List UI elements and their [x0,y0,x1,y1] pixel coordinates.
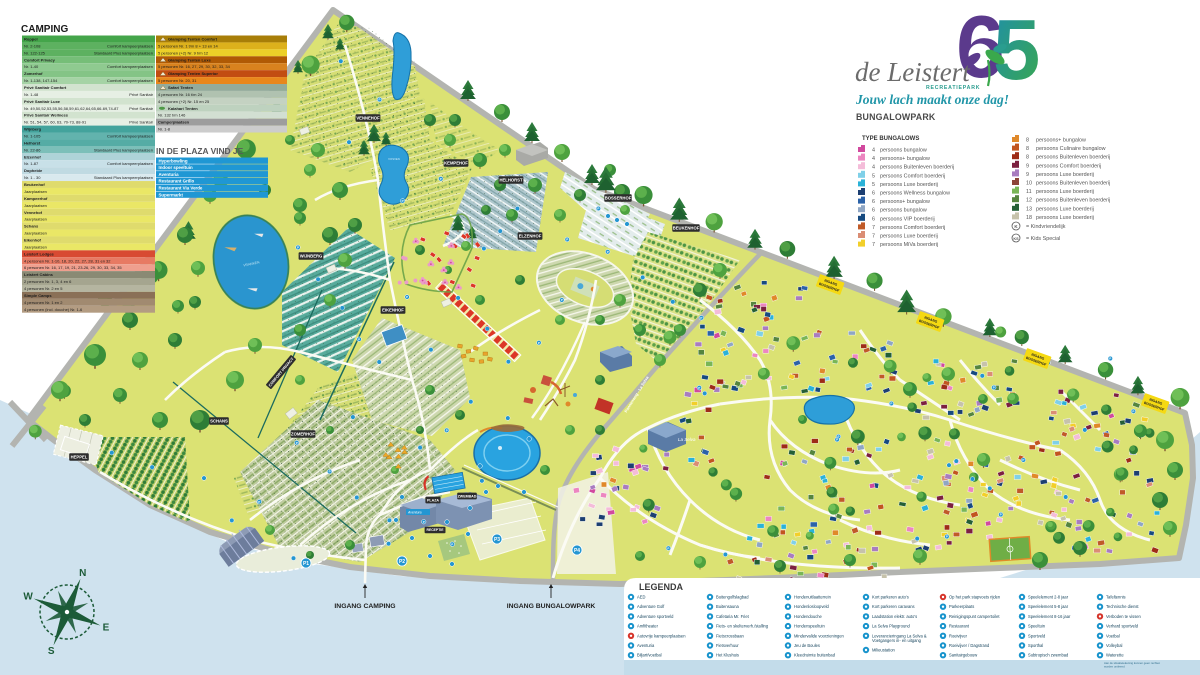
svg-text:P: P [402,199,404,203]
svg-text:Roeivijver / Dagstrand: Roeivijver / Dagstrand [949,643,990,648]
svg-text:persoons Luxe boerderij: persoons Luxe boerderij [1036,189,1094,195]
svg-text:P: P [1022,458,1024,462]
svg-text:7: 7 [872,242,875,248]
svg-text:8: 8 [1026,155,1029,161]
svg-text:P: P [566,238,568,242]
svg-text:P: P [446,428,448,432]
svg-text:Amfitheater: Amfitheater [637,624,659,629]
svg-text:Nr. 1-40: Nr. 1-40 [24,64,39,69]
svg-text:persoons Luxe boerderij: persoons Luxe boerderij [1036,206,1094,212]
svg-text:Comfort kampeerplaatsen: Comfort kampeerplaatsen [107,64,153,69]
svg-text:Standaard Plus kampeerplaatsen: Standaard Plus kampeerplaatsen [94,175,153,180]
svg-text:P: P [700,316,702,320]
svg-text:persoons bungalow: persoons bungalow [880,148,927,154]
svg-text:P2: P2 [399,559,405,565]
svg-text:Jaarplaatsen: Jaarplaatsen [24,189,47,194]
svg-text:P: P [667,546,669,550]
svg-text:Restaurant: Restaurant [949,624,970,629]
svg-text:CAMPING: CAMPING [21,24,68,35]
svg-text:Hondendouche: Hondendouche [794,614,822,619]
svg-text:N: N [79,568,86,579]
svg-text:Aventura: Aventura [407,511,422,515]
svg-text:4 personen Nr. 16 t/m 24: 4 personen Nr. 16 t/m 24 [158,92,203,97]
svg-text:Fietsverhuur: Fietsverhuur [716,643,739,648]
svg-text:Nr. 122-125: Nr. 122-125 [24,50,46,55]
svg-text:Kalahari Tenten: Kalahari Tenten [168,106,198,111]
svg-text:Hyperbowling: Hyperbowling [159,158,188,163]
svg-text:Privé Sanitair: Privé Sanitair [129,120,153,125]
svg-text:13: 13 [1026,206,1032,212]
svg-text:6: 6 [872,208,875,214]
svg-text:Kleedruimte buitenbad: Kleedruimte buitenbad [794,653,836,658]
svg-text:ZWEMBAD: ZWEMBAD [458,494,477,498]
svg-text:Nr. 1-48: Nr. 1-48 [24,92,39,97]
svg-text:SCHANS: SCHANS [210,419,228,424]
svg-text:INGANG BUNGALOWPARK: INGANG BUNGALOWPARK [507,603,596,610]
svg-text:INGANG CAMPING: INGANG CAMPING [334,603,395,610]
svg-text:Sanitairgebouw: Sanitairgebouw [949,653,977,658]
svg-text:Indoor speeltuin: Indoor speeltuin [159,165,193,170]
svg-text:Roeivijver: Roeivijver [949,633,968,638]
svg-text:KEMPEHOF: KEMPEHOF [444,161,468,166]
svg-text:Cafetaria Mr. Friet: Cafetaria Mr. Friet [716,614,750,619]
svg-text:Jaarplaatsen: Jaarplaatsen [24,203,47,208]
svg-text:P: P [358,337,360,341]
svg-text:Het Klushuis: Het Klushuis [716,653,739,658]
svg-text:VOSVEN: VOSVEN [388,157,400,161]
svg-text:Hondenspeeltuin: Hondenspeeltuin [794,624,825,629]
svg-text:La Selva Playground: La Selva Playground [872,624,911,629]
svg-text:P4: P4 [574,548,580,554]
svg-text:Camperplaatsen: Camperplaatsen [158,120,190,125]
svg-text:P: P [597,207,599,211]
svg-text:Speelelement 5-8 jaar: Speelelement 5-8 jaar [1028,604,1069,609]
svg-text:Beukenhof: Beukenhof [24,182,45,187]
svg-text:Standaard Plus kampeerplaatsen: Standaard Plus kampeerplaatsen [94,147,153,152]
svg-text:= Kindvriendelijk: = Kindvriendelijk [1026,224,1066,230]
svg-text:Hondenuitlaatterrein: Hondenuitlaatterrein [794,595,832,600]
svg-text:Reinigingspunt campertoilet: Reinigingspunt campertoilet [949,614,1000,619]
svg-text:Mindervalide voorzieningen: Mindervalide voorzieningen [794,633,845,638]
svg-text:Kort parkeren auto's: Kort parkeren auto's [872,595,909,600]
svg-text:Speeltuin: Speeltuin [1028,624,1046,629]
svg-text:P: P [406,295,408,299]
svg-text:Hondenlosloopveld: Hondenlosloopveld [794,604,830,609]
svg-text:7: 7 [872,234,875,240]
svg-text:P: P [993,386,995,390]
svg-text:VENNEHOF: VENNEHOF [356,116,380,121]
svg-text:Privé Sanitair Luxe: Privé Sanitair Luxe [24,99,61,104]
svg-text:KS: KS [1013,237,1019,241]
svg-text:6: 6 [872,191,875,197]
svg-text:S: S [48,646,55,657]
svg-text:persoons MiVa boerderij: persoons MiVa boerderij [880,242,938,248]
svg-text:9: 9 [1026,172,1029,178]
svg-text:P: P [423,520,425,524]
svg-text:Glamping Tenten Comfort: Glamping Tenten Comfort [168,37,218,42]
svg-text:11: 11 [1026,189,1032,195]
svg-text:5 personen (+2) Nr. 9 t/m 12: 5 personen (+2) Nr. 9 t/m 12 [158,50,209,55]
svg-text:Kort parkeren caravans: Kort parkeren caravans [872,604,915,609]
svg-text:persoons+ bungalow: persoons+ bungalow [880,199,930,205]
svg-text:Nr. 1-87: Nr. 1-87 [24,161,39,166]
svg-text:4 personen Nr. 1 en 2: 4 personen Nr. 1 en 2 [24,300,63,305]
svg-text:Technische dienst: Technische dienst [1106,604,1139,609]
svg-text:7: 7 [872,225,875,231]
svg-text:P: P [258,500,260,504]
svg-text:4 personen (+2) Nr. 15 en 25: 4 personen (+2) Nr. 15 en 25 [158,99,210,104]
svg-text:12: 12 [1026,198,1032,204]
svg-text:Restaurant Grillo: Restaurant Grillo [159,179,195,184]
svg-text:Tafeltennis: Tafeltennis [1106,595,1126,600]
svg-text:Nr. 1-8: Nr. 1-8 [158,127,171,132]
svg-text:Comfort kampeerplaatsen: Comfort kampeerplaatsen [107,134,153,139]
svg-text:Vennehof: Vennehof [24,210,43,215]
svg-text:Biljart/voetbal: Biljart/voetbal [637,653,662,658]
svg-text:P: P [378,98,380,102]
svg-text:E: E [103,623,110,634]
svg-text:Volleybal: Volleybal [1106,643,1122,648]
svg-text:Privé Sanitair: Privé Sanitair [129,92,153,97]
svg-text:Roppel: Roppel [24,37,38,42]
svg-text:de Leistert: de Leistert [855,57,971,87]
svg-text:EIKENHOF: EIKENHOF [382,308,404,313]
svg-text:5 personen Nr. 1 t/m 8 + 13 e: 5 personen Nr. 1 t/m 8 + 13 en 14 [158,43,218,48]
svg-text:Sportveld: Sportveld [1028,633,1046,638]
svg-text:Jouw lach maakt onze dag!: Jouw lach maakt onze dag! [855,92,1009,107]
svg-text:Aventuria: Aventuria [637,643,655,648]
svg-text:P: P [297,246,299,250]
svg-text:Comfort kampeerplaatsen: Comfort kampeerplaatsen [107,78,153,83]
svg-text:persoons Comfort boerderij: persoons Comfort boerderij [880,173,945,179]
svg-text:6 personen Nr. 16, 17, 19, 21,: 6 personen Nr. 16, 17, 19, 21, 23-26, 29… [24,265,122,270]
svg-text:Nr. 2-108: Nr. 2-108 [24,43,41,48]
svg-text:BEUKENHOF: BEUKENHOF [673,226,700,231]
svg-text:Leistert Cabins: Leistert Cabins [24,272,54,277]
svg-text:4 personen Nr. 1-10, 18, 20, 2: 4 personen Nr. 1-10, 18, 20, 22, 27, 28,… [24,258,111,263]
svg-text:IN DE PLAZA VIND JE: IN DE PLAZA VIND JE [156,146,244,156]
svg-text:persoons+ bungalow: persoons+ bungalow [880,156,930,162]
svg-text:Nr. 1 - 30: Nr. 1 - 30 [24,175,41,180]
svg-text:10: 10 [1026,181,1032,187]
svg-text:6: 6 [872,216,875,222]
svg-text:persoons Luxe boerderij: persoons Luxe boerderij [880,182,938,188]
svg-text:18: 18 [1026,215,1032,221]
svg-text:Fiets- en skelterverh./stallin: Fiets- en skelterverh./stalling [716,624,769,629]
svg-text:P3: P3 [494,537,500,543]
svg-text:persoons Luxe boerderij: persoons Luxe boerderij [880,234,938,240]
svg-text:Autovrije kampeerplaatsen: Autovrije kampeerplaatsen [637,633,686,638]
svg-text:Helhorst: Helhorst [24,140,41,145]
svg-text:Jaarplaatsen: Jaarplaatsen [24,231,47,236]
svg-text:5: 5 [872,173,875,179]
svg-text:persoons Buitenleven boerderij: persoons Buitenleven boerderij [1036,155,1110,161]
svg-text:Aventuria: Aventuria [159,172,180,177]
svg-text:persoons VIP boerderij: persoons VIP boerderij [880,216,935,222]
svg-text:Nr. 51, 54, 57, 60, 63, 70-73,: Nr. 51, 54, 57, 60, 63, 70-73, 88-91 [24,120,87,125]
svg-text:Buitensauna: Buitensauna [716,604,739,609]
svg-text:persoons Buitenleven boerderij: persoons Buitenleven boerderij [1036,181,1110,187]
svg-text:RECEPTIE: RECEPTIE [427,528,445,532]
svg-text:Jaarplaatsen: Jaarplaatsen [24,217,47,222]
svg-text:ELZENHOF: ELZENHOF [519,234,542,239]
svg-text:P: P [296,441,298,445]
svg-text:HEPPEL: HEPPEL [71,455,88,460]
svg-text:HELHORST: HELHORST [499,178,522,183]
svg-text:Op het park stapvoets rijden: Op het park stapvoets rijden [949,595,1001,600]
svg-text:persoons+ bungalow: persoons+ bungalow [1036,138,1086,144]
svg-text:Privé Sanitair Comfort: Privé Sanitair Comfort [24,85,67,90]
svg-text:Voetbal: Voetbal [1106,633,1120,638]
svg-text:Restaurant Via Verde: Restaurant Via Verde [159,186,203,191]
svg-text:Leistert Lodges: Leistert Lodges [24,251,55,256]
svg-text:WIJNBERG: WIJNBERG [300,254,323,259]
svg-text:Buitengolfslagbad: Buitengolfslagbad [716,595,749,600]
svg-text:Verhard sportveld: Verhard sportveld [1106,624,1139,629]
svg-text:persoons Wellness bungalow: persoons Wellness bungalow [880,191,950,197]
svg-text:= Kids Special: = Kids Special [1026,236,1060,242]
svg-text:RECREATIEPARK: RECREATIEPARK [926,85,980,91]
svg-text:Parkeerplaats: Parkeerplaats [949,604,974,609]
svg-text:P: P [440,177,442,181]
svg-text:persoons bungalow: persoons bungalow [880,208,927,214]
svg-text:persoons Buitenleven boerderij: persoons Buitenleven boerderij [1036,198,1110,204]
svg-text:Milieustation: Milieustation [872,648,895,653]
svg-text:Speelelement 8-16 jaar: Speelelement 8-16 jaar [1028,614,1071,619]
svg-text:Fietscrossbaan: Fietscrossbaan [716,633,744,638]
svg-text:Jeu de Boules: Jeu de Boules [794,643,820,648]
svg-text:Subtropisch zwembad: Subtropisch zwembad [1028,653,1069,658]
svg-text:Nr. 22-86: Nr. 22-86 [24,147,41,152]
svg-text:9: 9 [1026,163,1029,169]
svg-text:Comfort kampeerplaatsen: Comfort kampeerplaatsen [107,43,153,48]
svg-text:PLAZA: PLAZA [427,498,439,502]
svg-text:P: P [946,535,948,539]
svg-text:5: 5 [872,182,875,188]
svg-text:P: P [329,470,331,474]
svg-text:6: 6 [872,199,875,205]
svg-text:P: P [698,386,700,390]
svg-text:TYPE BUNGALOWS: TYPE BUNGALOWS [862,136,919,142]
svg-text:4: 4 [872,156,875,162]
svg-text:8: 8 [1026,146,1029,152]
svg-text:BOSSERHOF: BOSSERHOF [605,196,632,201]
svg-text:Nr. 1-105: Nr. 1-105 [24,134,41,139]
svg-text:persoons Culinaire bungalow: persoons Culinaire bungalow [1036,146,1106,152]
svg-text:Glamping Tenten Luxe: Glamping Tenten Luxe [168,57,212,62]
svg-text:Nr. 1-138, 147-154: Nr. 1-138, 147-154 [24,78,58,83]
svg-text:W: W [23,591,33,602]
svg-text:Safari Tenten: Safari Tenten [168,85,194,90]
svg-text:Nr. 132 t/m 146: Nr. 132 t/m 146 [158,113,186,118]
svg-text:4: 4 [872,165,875,171]
svg-text:Schans: Schans [24,224,39,229]
svg-text:P: P [561,298,563,302]
svg-text:4 personen Nr. 2 en 5: 4 personen Nr. 2 en 5 [24,286,63,291]
svg-text:5 personen Nr. 20, 31: 5 personen Nr. 20, 31 [158,78,197,83]
svg-text:persoons Buitenleven boerderij: persoons Buitenleven boerderij [880,165,954,171]
svg-text:Elzenhof: Elzenhof [24,154,41,159]
svg-text:P: P [607,250,609,254]
svg-text:Kampeerhof: Kampeerhof [24,196,48,201]
svg-text:Comfort kampeerplaatsen: Comfort kampeerplaatsen [107,161,153,166]
svg-text:5 personen Nr. 16, 27, 29, 30: 5 personen Nr. 16, 27, 29, 30, 32, 33, 3… [158,64,231,69]
svg-text:Adventure Golf: Adventure Golf [637,604,665,609]
svg-text:persoons Comfort boerderij: persoons Comfort boerderij [1036,163,1101,169]
svg-text:P: P [890,402,892,406]
svg-text:P: P [451,542,453,546]
svg-text:Waterette: Waterette [1106,653,1124,658]
svg-text:4 personen (incl. douche) Nr.: 4 personen (incl. douche) Nr. 1-6 [24,307,83,312]
svg-text:Voetgangers in- en uitgang: Voetgangers in- en uitgang [872,638,922,643]
svg-text:BUNGALOWPARK: BUNGALOWPARK [856,112,936,122]
svg-text:P: P [836,438,838,442]
svg-text:Nr. 49,50,52,53,55,56,58,59,61: Nr. 49,50,52,53,55,56,58,59,61,62,64,65,… [24,106,119,111]
svg-text:Eikenhof: Eikenhof [24,237,42,242]
svg-text:2 personen Nr. 1, 3, 4 en 6: 2 personen Nr. 1, 3, 4 en 6 [24,279,72,284]
svg-text:Speelelement 2-8 jaar: Speelelement 2-8 jaar [1028,595,1069,600]
svg-text:AED: AED [637,595,645,600]
svg-text:Glamping Tenten Superior: Glamping Tenten Superior [168,71,218,76]
svg-text:LEGENDA: LEGENDA [639,582,684,592]
svg-text:P1: P1 [303,561,309,567]
svg-text:Wijnberg: Wijnberg [24,127,42,132]
svg-text:Sporthal: Sporthal [1028,643,1043,648]
svg-text:Privé Sanitair: Privé Sanitair [129,106,153,111]
svg-text:8: 8 [1026,138,1029,144]
svg-text:Adventure sportveld: Adventure sportveld [637,614,674,619]
svg-text:Laadstation elektr. auto's: Laadstation elektr. auto's [872,614,917,619]
svg-text:persoons Comfort boerderij: persoons Comfort boerderij [880,225,945,231]
svg-text:P: P [1132,409,1134,413]
svg-text:Zomerhof: Zomerhof [24,71,43,76]
svg-text:Jaarplaatsen: Jaarplaatsen [24,244,47,249]
svg-text:P: P [1000,513,1002,517]
svg-text:Comfort Privacy: Comfort Privacy [24,57,56,62]
svg-text:P: P [538,341,540,345]
svg-text:P: P [1109,357,1111,361]
svg-text:Dopheide: Dopheide [24,168,43,173]
svg-text:Supermarkt: Supermarkt [159,192,184,197]
svg-text:Verboden te vissen: Verboden te vissen [1106,614,1142,619]
svg-text:Privé Sanitair Wellness: Privé Sanitair Wellness [24,113,69,118]
svg-text:La Selva: La Selva [678,437,696,442]
svg-text:4: 4 [872,148,875,154]
svg-text:ZOMERHOF: ZOMERHOF [291,432,315,437]
svg-text:worden ontleend: worden ontleend [1104,665,1125,669]
svg-text:persoons Luxe boerderij: persoons Luxe boerderij [1036,215,1094,221]
svg-text:persoons Luxe boerderij: persoons Luxe boerderij [1036,172,1094,178]
svg-text:Standaard Plus kampeerplaatsen: Standaard Plus kampeerplaatsen [94,50,153,55]
svg-text:Simple Camps: Simple Camps [24,293,52,298]
